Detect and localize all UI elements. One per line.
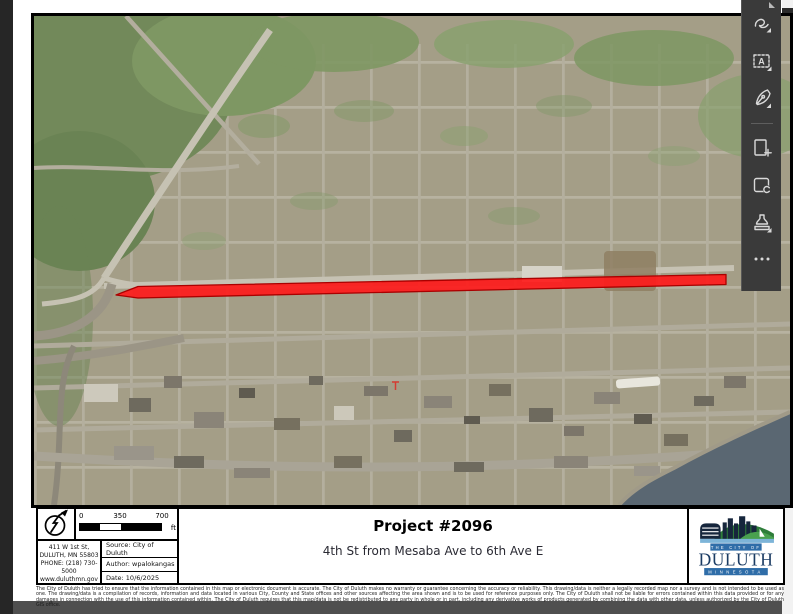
cropped-icon-corner bbox=[769, 2, 775, 8]
map-layout-panel: 0 350 700 ft 411 W 1st St, DULUTH, MN 55… bbox=[36, 507, 785, 585]
title-block: Project #2096 4th St from Mesaba Ave to … bbox=[179, 509, 687, 583]
north-arrow-icon bbox=[41, 509, 71, 539]
pdf-page: 0 350 700 ft 411 W 1st St, DULUTH, MN 55… bbox=[13, 0, 782, 601]
scale-bar-cell: 0 350 700 ft bbox=[76, 509, 177, 539]
address-line-2: DULUTH, MN 55803 bbox=[38, 552, 100, 560]
add-text-icon[interactable]: A bbox=[749, 48, 775, 74]
logo-name: DULUTH bbox=[699, 549, 774, 569]
insert-pages-icon[interactable] bbox=[749, 135, 775, 161]
app-left-edge bbox=[0, 0, 13, 614]
scale-tick-0: 0 bbox=[79, 512, 83, 520]
svg-text:A: A bbox=[758, 57, 765, 67]
address-line-3: PHONE: (218) 730-5000 bbox=[38, 560, 100, 576]
meta-author: Author: wpalokangas bbox=[102, 558, 177, 572]
aerial-imagery bbox=[34, 16, 790, 505]
city-address: 411 W 1st St, DULUTH, MN 55803 PHONE: (2… bbox=[38, 541, 102, 584]
north-arrow-cell bbox=[38, 509, 76, 539]
duluth-logo: THE CITY OF DULUTH MINNESOTA bbox=[696, 513, 776, 579]
meta-source: Source: City of Duluth bbox=[102, 541, 177, 558]
scale-and-credits-box: 0 350 700 ft 411 W 1st St, DULUTH, MN 55… bbox=[38, 509, 179, 583]
meta-date: Date: 10/6/2025 bbox=[102, 572, 177, 585]
project-title: Project #2096 bbox=[179, 517, 687, 535]
stamp-icon[interactable] bbox=[749, 209, 775, 235]
acrobat-tools-toolbar: A bbox=[741, 0, 781, 291]
logo-state: MINNESOTA bbox=[708, 569, 763, 574]
scale-tick-350: 350 bbox=[113, 512, 126, 520]
address-line-4: www.duluthmn.gov bbox=[38, 576, 100, 584]
more-tools-icon[interactable] bbox=[749, 246, 775, 272]
draw-icon[interactable] bbox=[749, 11, 775, 37]
logo-box: THE CITY OF DULUTH MINNESOTA bbox=[687, 509, 783, 583]
project-subtitle: 4th St from Mesaba Ave to 6th Ave E bbox=[179, 544, 687, 558]
address-line-1: 411 W 1st St, bbox=[38, 544, 100, 552]
scale-bar bbox=[79, 523, 162, 531]
edit-scan-icon[interactable] bbox=[749, 172, 775, 198]
fill-sign-icon[interactable] bbox=[749, 85, 775, 111]
scale-unit: ft bbox=[171, 524, 176, 532]
scale-tick-700: 700 bbox=[155, 512, 168, 520]
toolbar-divider bbox=[751, 123, 773, 124]
map-disclaimer: The City of Duluth has tried to ensure t… bbox=[36, 587, 784, 608]
map-metadata: Source: City of Duluth Author: wpalokang… bbox=[102, 541, 177, 584]
aerial-map bbox=[31, 13, 793, 508]
